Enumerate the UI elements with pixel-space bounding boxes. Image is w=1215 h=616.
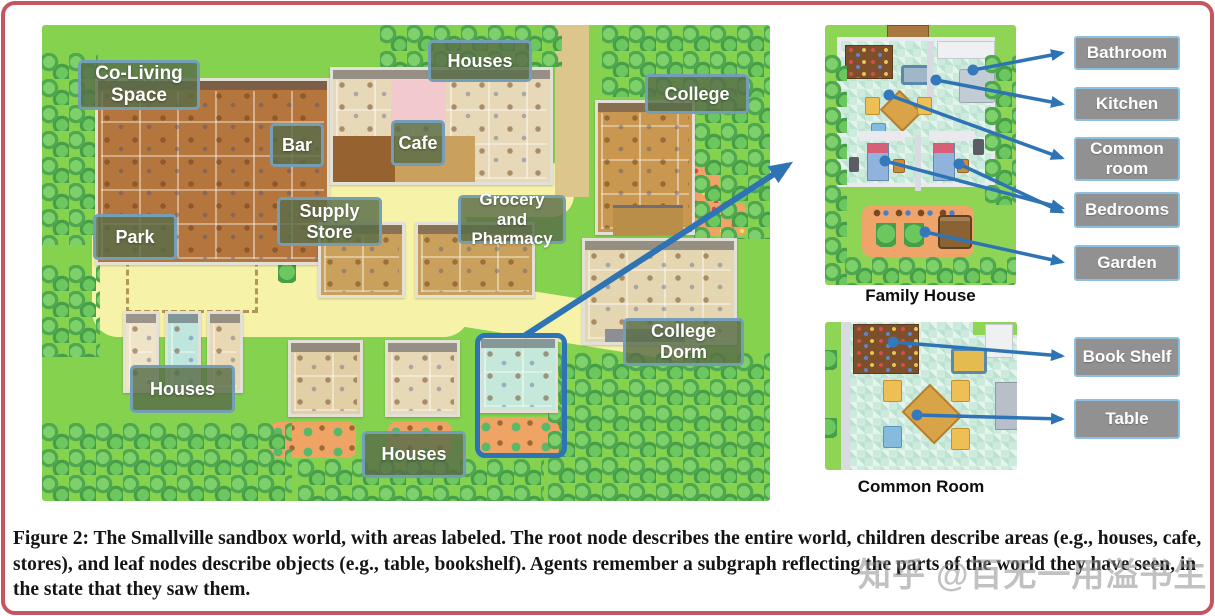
label-table: Table (1074, 399, 1180, 439)
chair (951, 380, 970, 402)
forest (42, 423, 292, 501)
family-house-highlight-box (475, 333, 567, 458)
person (849, 157, 859, 172)
smallville-map: Co-Living Space Houses Bar Cafe College … (42, 25, 770, 501)
chair (883, 380, 902, 402)
area-label-supply-store: Supply Store (277, 197, 382, 246)
area-label-park: Park (93, 214, 177, 260)
bed (933, 143, 955, 181)
inset-trees (845, 257, 1016, 285)
label-bedrooms: Bedrooms (1074, 192, 1180, 228)
bed (867, 143, 889, 181)
garden-area (862, 205, 974, 257)
area-label-college-dorm: College Dorm (623, 318, 744, 366)
laundry (985, 324, 1013, 358)
inset-trees (985, 55, 1016, 205)
chair (951, 428, 970, 450)
gazebo (938, 215, 972, 249)
family-house-inset (825, 25, 1016, 285)
chair (883, 426, 902, 448)
college-porch (613, 205, 683, 235)
area-label-grocery-pharmacy: Grocery and Pharmacy (458, 195, 566, 244)
bed-alcove (929, 131, 975, 141)
bedroom-wall (915, 135, 921, 191)
figure-page: { "map": { "labels": [ {"id": "co-living… (0, 0, 1215, 616)
counter (995, 382, 1017, 430)
chair (917, 97, 932, 115)
area-label-college: College (645, 74, 749, 114)
label-book-shelf: Book Shelf (1074, 337, 1180, 377)
area-label-houses-bottom-left: Houses (130, 365, 235, 413)
family-house-caption: Family House (825, 286, 1016, 306)
label-garden: Garden (1074, 245, 1180, 281)
label-common-room: Common room (1074, 137, 1180, 181)
area-label-cafe: Cafe (391, 120, 445, 166)
dining-table (880, 90, 922, 132)
bookshelf (853, 324, 919, 374)
tree (825, 418, 837, 438)
area-label-co-living-space: Co-Living Space (78, 60, 200, 110)
bookshelf (845, 45, 893, 79)
bar-floor (333, 136, 395, 182)
forest (42, 265, 100, 357)
garden-tree (904, 223, 924, 247)
common-room-inset (825, 322, 1017, 470)
forest (548, 353, 770, 501)
grass-strip (825, 322, 841, 470)
building-house-mid (288, 340, 363, 417)
chair (865, 97, 880, 115)
pink-room (391, 80, 446, 125)
picture-rug (951, 348, 987, 374)
stool (957, 159, 969, 173)
building-house-mid (385, 340, 460, 417)
family-house-floorplan (837, 37, 995, 187)
area-label-houses-bottom-middle: Houses (362, 431, 466, 478)
area-label-houses-top: Houses (428, 40, 532, 82)
person (973, 139, 984, 155)
inset-trees (825, 55, 847, 285)
common-room-caption: Common Room (825, 477, 1017, 497)
forest (694, 97, 770, 239)
label-bathroom: Bathroom (1074, 36, 1180, 70)
tree (825, 350, 837, 370)
bed-alcove (859, 131, 905, 141)
garden-tree (876, 223, 896, 247)
building-college (595, 100, 695, 235)
label-kitchen: Kitchen (1074, 87, 1180, 121)
park-tree (278, 263, 296, 283)
watermark: 知乎 @百无一用溢书生 (858, 548, 1210, 596)
left-wall (841, 322, 850, 470)
area-label-bar: Bar (270, 123, 324, 167)
stool (893, 159, 905, 173)
